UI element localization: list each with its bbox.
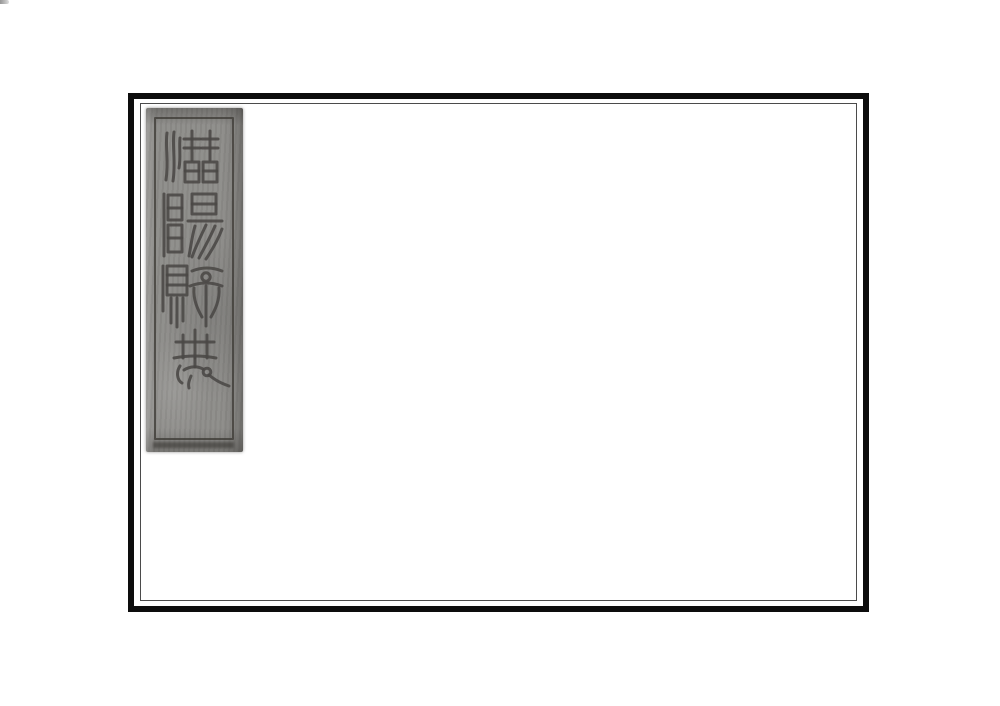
title-char-3: 縣 <box>160 270 230 316</box>
cover-inner-frame <box>140 103 857 601</box>
scan-artifact-mark <box>0 0 9 4</box>
cover-outer-frame: 潛 陽 縣 志 <box>128 93 869 612</box>
title-char-4: 志 <box>160 334 230 380</box>
title-label: 潛 陽 縣 志 <box>146 108 243 452</box>
scanned-book-cover-page: 潛 陽 縣 志 <box>0 0 1000 706</box>
title-char-2: 陽 <box>160 200 230 246</box>
title-char-1: 潛 <box>160 132 230 178</box>
